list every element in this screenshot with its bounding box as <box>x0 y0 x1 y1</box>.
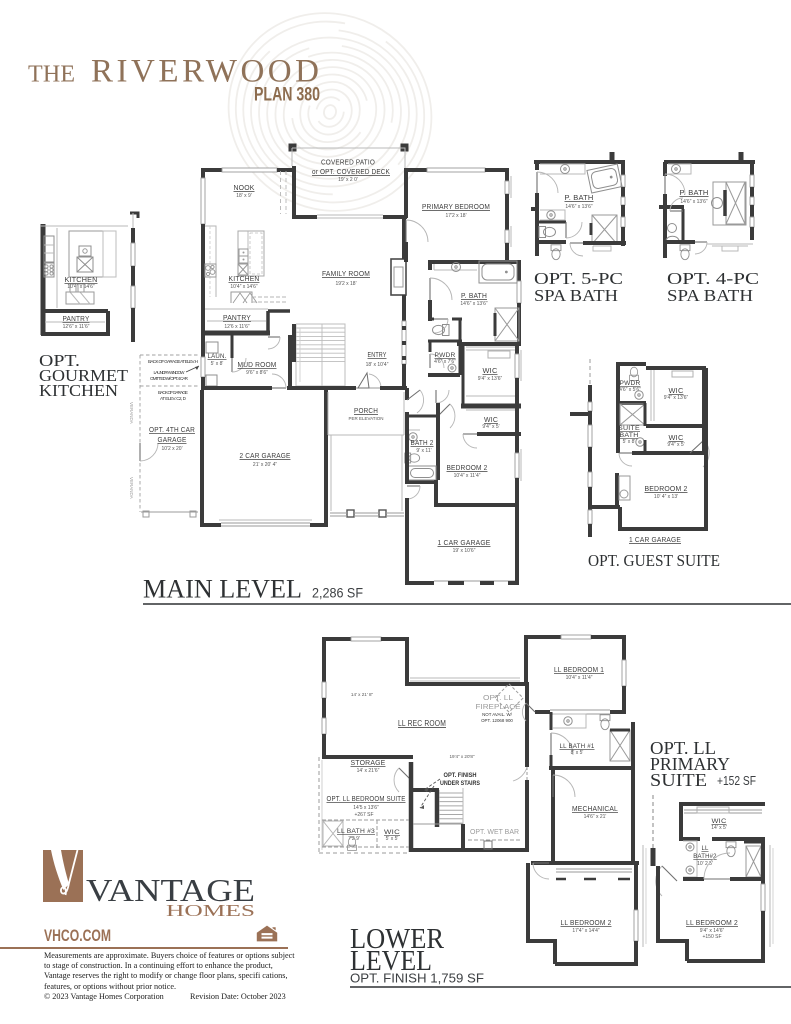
svg-text:VHCO.COM: VHCO.COM <box>44 926 111 945</box>
svg-text:HOMES: HOMES <box>166 901 255 920</box>
